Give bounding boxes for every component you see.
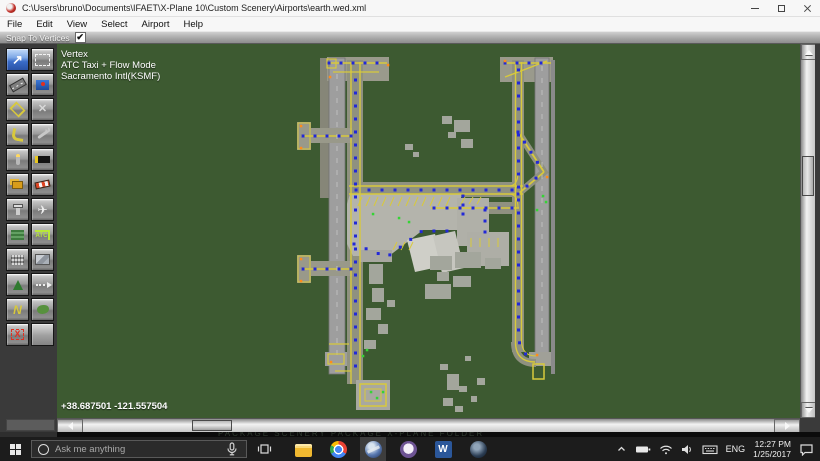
touch-keyboard-icon[interactable] [702, 444, 718, 455]
github-icon [400, 441, 417, 458]
window-title: C:\Users\bruno\Documents\IFAET\X-Plane 1… [22, 3, 366, 13]
ramp-start-tool[interactable]: ✈ [31, 198, 54, 221]
menu-bar: FileEditViewSelectAirportHelp [0, 17, 820, 31]
light-fixture-tool-icon [16, 154, 20, 165]
task-view-icon[interactable] [257, 442, 272, 456]
exclusion-zone-tool-icon: X [11, 329, 23, 340]
menu-item-help[interactable]: Help [177, 17, 211, 31]
boundary-tool-icon [37, 130, 49, 139]
snap-toolbar: Snap To Vertices ✔ [0, 31, 820, 44]
menu-item-file[interactable]: File [0, 17, 29, 31]
facade-tool-icon [11, 255, 24, 265]
language-indicator[interactable]: ENG [726, 444, 746, 454]
exclusion-zone-tool[interactable]: X [6, 323, 29, 346]
taskbar-app-chrome[interactable] [325, 437, 351, 461]
menu-item-airport[interactable]: Airport [135, 17, 177, 31]
search-placeholder: Ask me anything [55, 444, 225, 455]
taskbar-app-wed[interactable] [360, 437, 386, 461]
minimize-button[interactable] [742, 0, 768, 16]
hole-tool[interactable]: ✕ [31, 98, 54, 121]
title-bar: C:\Users\bruno\Documents\IFAET\X-Plane 1… [0, 0, 820, 17]
sign-tool-icon [35, 156, 50, 163]
scroll-down-button[interactable] [801, 402, 816, 418]
ramp-start-tool-icon: ✈ [37, 204, 47, 216]
object-art-tool[interactable] [31, 248, 54, 271]
overlay-mode-name: ATC Taxi + Flow Mode [61, 60, 160, 71]
up-arrow-icon [805, 50, 813, 55]
light-fixture-tool[interactable] [6, 148, 29, 171]
snap-to-vertices-label: Snap To Vertices [6, 33, 70, 43]
down-arrow-icon [805, 408, 813, 413]
taxiline-tool-icon [11, 128, 25, 142]
taskbar-clock[interactable]: 12:27 PM 1/25/2017 [753, 439, 791, 459]
start-button[interactable] [0, 437, 30, 461]
polygon-tool[interactable] [31, 298, 54, 321]
object-tool[interactable] [6, 173, 29, 196]
file-explorer-icon [295, 444, 312, 457]
wed-icon [365, 441, 382, 458]
menu-item-select[interactable]: Select [94, 17, 134, 31]
line-tool[interactable]: N [6, 298, 29, 321]
clock-time: 12:27 PM [753, 439, 791, 449]
wed-app-icon [6, 3, 16, 13]
scroll-up-button[interactable] [801, 44, 816, 60]
orthophoto-tool[interactable] [6, 223, 29, 246]
sealane-tool[interactable] [31, 73, 54, 96]
boundary-tool[interactable] [31, 123, 54, 146]
battery-icon[interactable] [635, 444, 651, 455]
wifi-icon[interactable] [659, 444, 673, 455]
tool-palette: ↗✕✈ATCNX [0, 44, 57, 418]
forest-tool-icon [13, 280, 23, 290]
mode-overlay: Vertex ATC Taxi + Flow Mode Sacramento I… [61, 49, 160, 82]
chrome-icon [330, 441, 347, 458]
volume-icon[interactable] [681, 444, 694, 455]
snap-to-vertices-checkbox[interactable]: ✔ [75, 32, 86, 43]
atc-taxi-route-tool[interactable]: ATC [31, 223, 54, 246]
string-tool-icon [36, 284, 49, 286]
x-plane-icon [470, 441, 487, 458]
cortana-icon [38, 444, 49, 455]
forest-tool[interactable] [6, 273, 29, 296]
clock-date: 1/25/2017 [753, 449, 791, 459]
system-tray: ENG 12:27 PM 1/25/2017 [616, 439, 820, 459]
tower-viewpoint-tool[interactable] [6, 198, 29, 221]
action-center-icon[interactable] [799, 443, 814, 456]
horizontal-scrollbar-row [0, 418, 820, 432]
search-box[interactable]: Ask me anything [31, 440, 247, 458]
taxiway-tool-icon [9, 101, 25, 117]
polygon-tool-icon [37, 305, 49, 314]
tower-viewpoint-tool-icon [16, 205, 20, 215]
taskbar-app-file-explorer[interactable] [290, 437, 316, 461]
scroll-left-button[interactable] [57, 419, 83, 433]
object-art-tool-icon [35, 254, 50, 265]
taskbar-app-github[interactable] [395, 437, 421, 461]
taskbar-app-x-plane[interactable] [465, 437, 491, 461]
cursor-coordinates: +38.687501 -121.557504 [61, 401, 167, 412]
vertical-scroll-thumb[interactable] [802, 156, 814, 196]
taxiline-tool[interactable] [6, 123, 29, 146]
horizontal-scroll-thumb[interactable] [192, 420, 232, 431]
empty-slot [31, 323, 54, 346]
taskbar: Ask me anything W ENG 12:27 PM 1/25/2017 [0, 437, 820, 461]
maximize-button[interactable] [768, 0, 794, 16]
overlay-airport-name: Sacramento Intl(KSMF) [61, 71, 160, 82]
vertex-tool[interactable]: ↗ [6, 48, 29, 71]
sealane-tool-icon [36, 80, 49, 90]
orthophoto-tool-icon [11, 230, 24, 240]
workspace: ↗✕✈ATCNX Vertex ATC Taxi + Flow Mode Sac… [0, 44, 820, 418]
close-button[interactable] [794, 0, 820, 16]
runway-tool-icon [9, 77, 27, 92]
windows-logo-icon [10, 444, 21, 455]
airport-map [57, 44, 800, 418]
runway-tool[interactable] [6, 73, 29, 96]
show-hidden-icons-chevron[interactable] [616, 444, 627, 454]
microphone-icon[interactable] [225, 442, 239, 456]
right-arrow-icon [785, 422, 790, 430]
string-tool[interactable] [31, 273, 54, 296]
facade-tool[interactable] [6, 248, 29, 271]
marquee-tool-icon [35, 54, 50, 66]
object-tool-icon [12, 181, 23, 189]
sign-tool[interactable] [31, 148, 54, 171]
marquee-tool[interactable] [31, 48, 54, 71]
scroll-right-button[interactable] [774, 419, 800, 433]
hole-tool-icon: ✕ [38, 104, 47, 115]
vertex-tool-icon: ↗ [12, 53, 23, 66]
windsock-tool[interactable] [31, 173, 54, 196]
right-edge-strip [815, 44, 820, 418]
atc-taxi-route-tool-icon: ATC [35, 230, 51, 240]
horizontal-scrollbar[interactable] [57, 418, 800, 432]
menu-item-edit[interactable]: Edit [29, 17, 59, 31]
taxiway-tool[interactable] [6, 98, 29, 121]
map-canvas[interactable]: Vertex ATC Taxi + Flow Mode Sacramento I… [57, 44, 800, 418]
menu-item-view[interactable]: View [60, 17, 94, 31]
taskbar-app-word[interactable]: W [430, 437, 456, 461]
scrollbar-corner-box [6, 419, 55, 431]
left-arrow-icon [68, 422, 73, 430]
vertical-scrollbar[interactable] [800, 44, 815, 418]
line-tool-icon: N [13, 304, 22, 316]
scrollbar-corner-right [800, 418, 820, 432]
overlay-tool-name: Vertex [61, 49, 160, 60]
word-icon: W [435, 441, 452, 458]
windsock-tool-icon [34, 180, 50, 190]
